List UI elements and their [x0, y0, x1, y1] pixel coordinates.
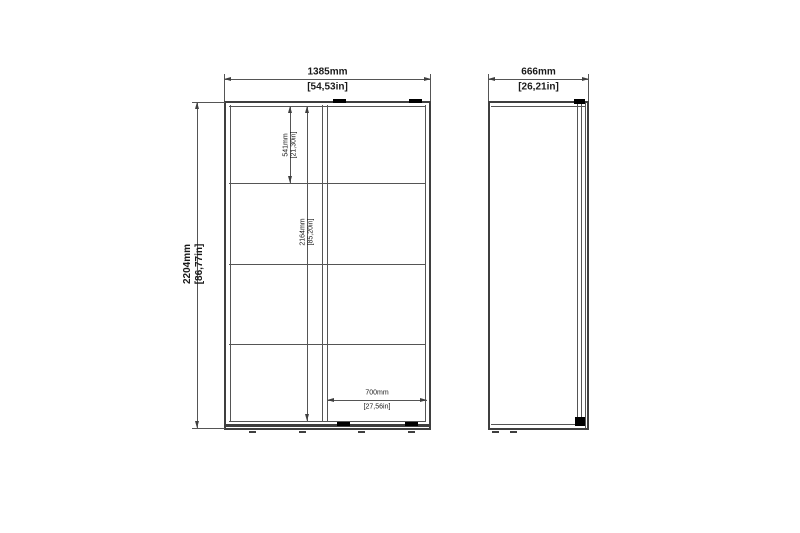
side-depth-mm-label: 666mm [521, 66, 555, 77]
door-roller-top-left-mark [333, 99, 346, 103]
front-right-side-outer [429, 101, 431, 430]
dim-depth-arrow-right [582, 77, 589, 81]
front-shelf-line-2 [229, 264, 426, 265]
door-roller-top-right-mark [409, 99, 422, 103]
front-bottom-rail [224, 424, 431, 427]
dim-541-arrow-bottom [288, 176, 292, 183]
side-depth-in-label: [26,21in] [518, 81, 559, 92]
dim-2164-line [307, 106, 308, 421]
front-foot-4 [408, 431, 415, 434]
dim-width-line [224, 79, 431, 80]
dim-700-arrow-right [420, 398, 427, 402]
dim-2164-arrow-bottom [305, 414, 309, 421]
interior-height-label: 2164mm [85,20in] [300, 218, 317, 245]
front-foot-1 [249, 431, 256, 434]
top-compartment-label: 541mm [21,30in] [283, 131, 300, 158]
side-back-edge [488, 101, 490, 430]
front-width-in-label: [54,53in] [307, 81, 348, 92]
side-foot-2 [510, 431, 517, 434]
side-top-inner [491, 106, 586, 107]
front-foot-2 [299, 431, 306, 434]
front-foot-3 [358, 431, 365, 434]
dim-depth-arrow-left [488, 77, 495, 81]
dim-depth-line [488, 79, 589, 80]
side-bottom-edge [488, 428, 589, 430]
front-width-mm-label: 1385mm [307, 66, 347, 77]
door-roller-bottom-left-mark [337, 422, 350, 426]
side-door-bottom-wheel [575, 417, 585, 426]
dim-height-arrow-bottom [195, 421, 199, 428]
front-shelf-line-3 [229, 344, 426, 345]
side-door-front-line [581, 104, 582, 418]
side-door-top-bracket [574, 99, 585, 104]
dim-700-arrow-left [327, 398, 334, 402]
dim-2164-arrow-top [305, 106, 309, 113]
front-height-mm-label: 2204mm [182, 244, 194, 285]
front-shelf-line-1 [229, 183, 426, 184]
dim-height-ext-bottom [192, 428, 225, 429]
side-front-edge-inner [585, 103, 586, 429]
side-foot-1 [492, 431, 499, 434]
interior-height-mm-label: 2164mm [300, 218, 308, 245]
door-width-in-label: [27,56in] [364, 403, 391, 410]
side-door-back-line [577, 104, 578, 418]
technical-drawing-canvas: 1385mm [54,53in] 2204mm [86,77in] 541mm … [0, 0, 800, 533]
dim-width-arrow-left [224, 77, 231, 81]
front-height-in-label: [86,77in] [194, 244, 206, 285]
dim-700-line [327, 400, 427, 401]
front-height-label: 2204mm [86,77in] [182, 244, 206, 285]
side-bottom-inner [491, 424, 581, 425]
door-width-mm-label: 700mm [365, 390, 388, 397]
dim-541-arrow-top [288, 106, 292, 113]
front-left-side-outer [224, 101, 226, 430]
top-compartment-in-label: [21,30in] [291, 131, 299, 158]
top-compartment-mm-label: 541mm [283, 131, 291, 158]
side-front-edge-outer [587, 101, 589, 430]
front-top-track [229, 106, 426, 107]
dim-height-arrow-top [195, 102, 199, 109]
dim-width-arrow-right [424, 77, 431, 81]
door-roller-bottom-right-mark [405, 422, 418, 426]
interior-height-in-label: [85,20in] [308, 218, 316, 245]
front-top-edge [224, 101, 431, 103]
front-bottom-track [229, 421, 426, 422]
